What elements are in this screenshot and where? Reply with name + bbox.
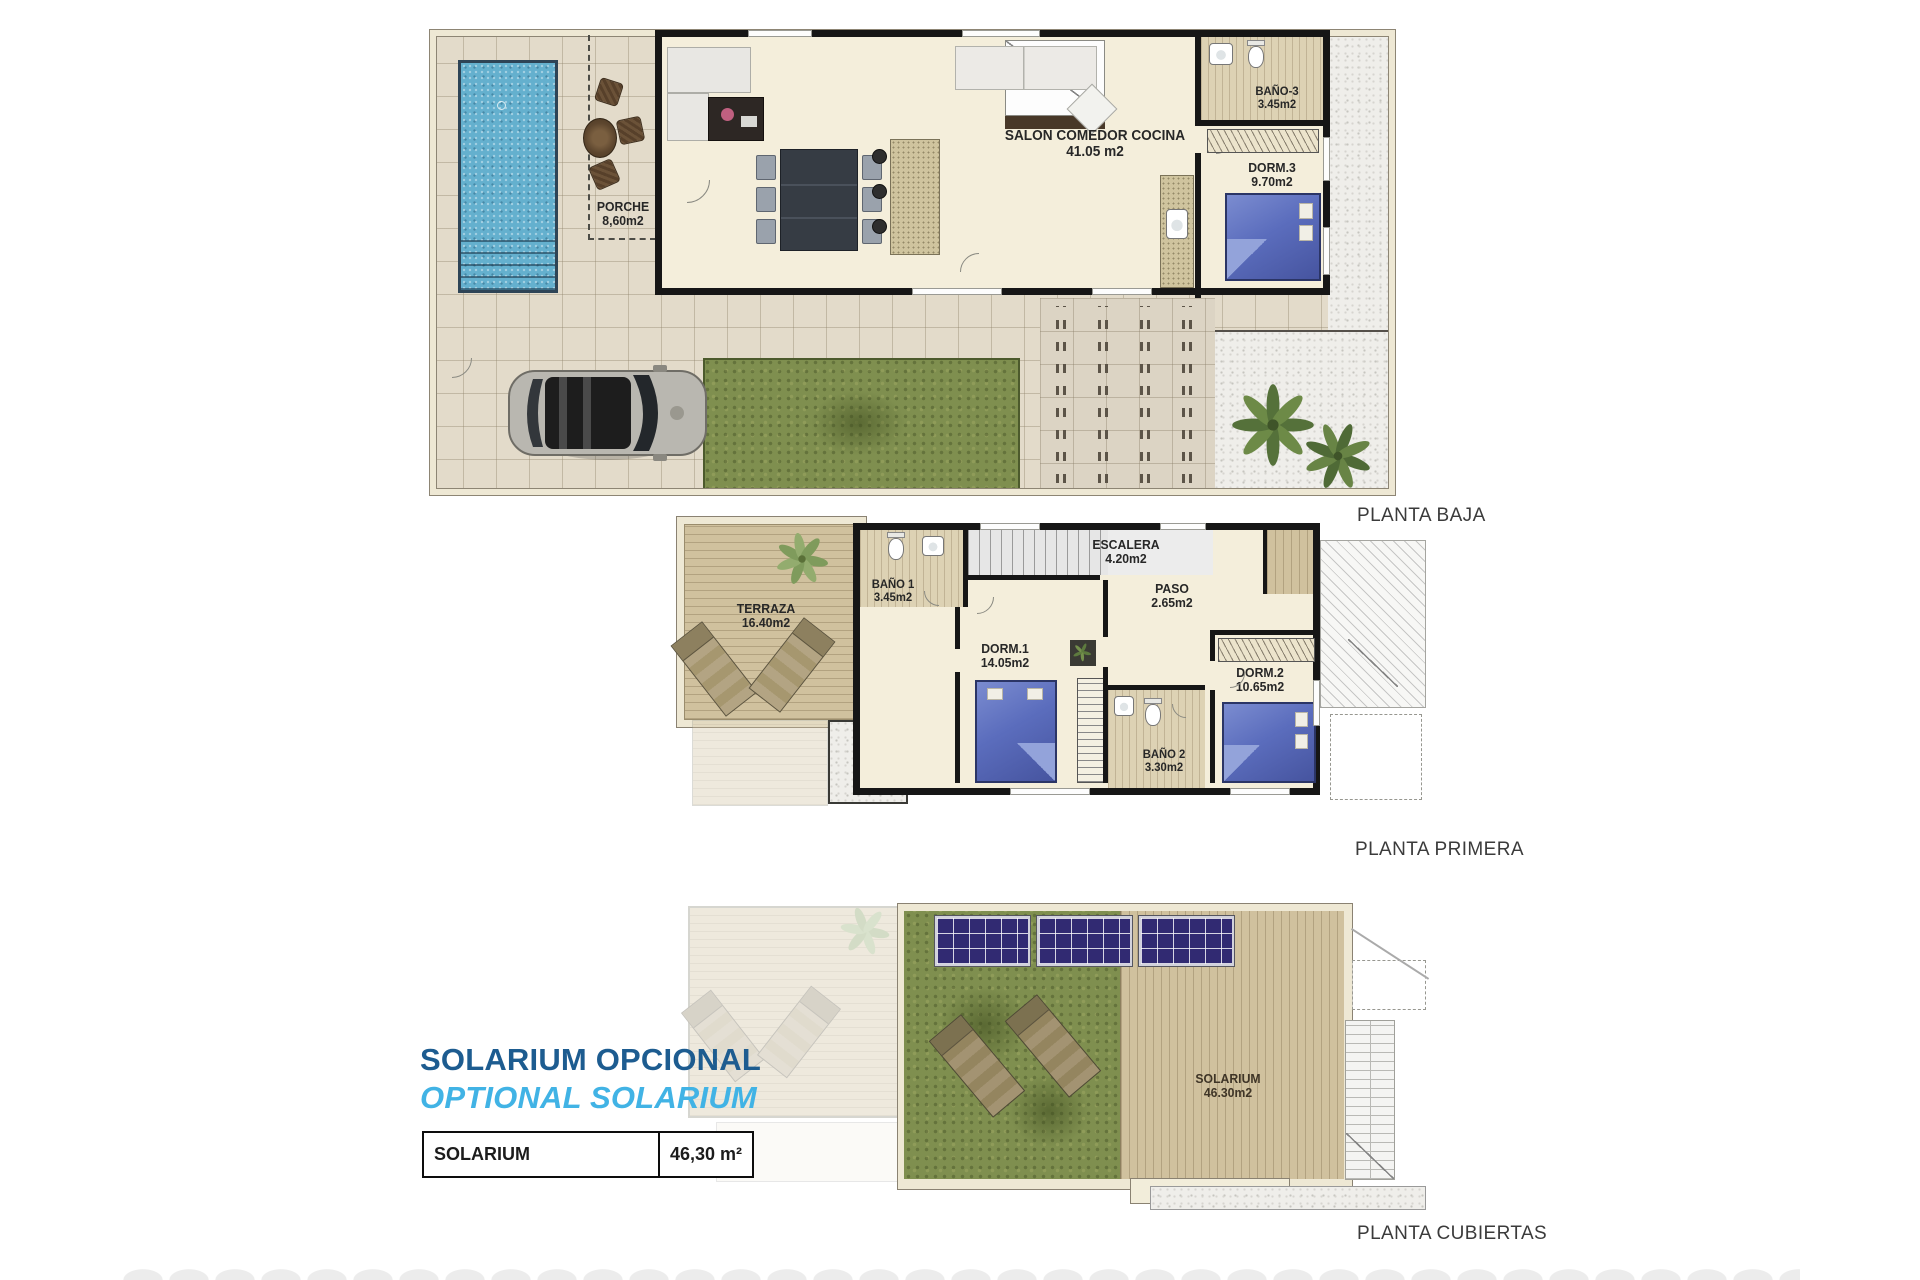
palm-tree [1302,420,1374,492]
house-outline: BAÑO 13.45m2 ESCALERA4.20m2 PASO2.65m2 D… [853,523,1320,795]
room-label-salon: SALON COMEDOR COCINA41.05 m2 [982,129,1208,161]
solarium-table-value: 46,30 m² [660,1133,752,1176]
door-swing [960,253,998,291]
room-label-solarium: SOLARIUM46.30m2 [1181,1072,1275,1101]
interior-wall [1195,120,1323,126]
potted-tree [771,528,833,590]
bed [975,680,1057,783]
solarium-table-label: SOLARIUM [424,1133,660,1176]
car [505,363,710,463]
optional-solarium-heading-en: OPTIONAL SOLARIUM [420,1080,757,1116]
roof-hip-line [1348,639,1398,687]
sink [922,536,944,556]
solar-panel [1139,916,1234,966]
room-label-escalera: ESCALERA4.20m2 [1079,538,1173,567]
wardrobe [1207,129,1319,153]
room-label-bano1: BAÑO 13.45m2 [859,578,927,604]
interior-wall [1195,153,1201,298]
bar-stool [872,184,887,199]
bar-stool [872,219,887,234]
lower-deck-ghost [692,720,828,806]
dining-chair [756,187,776,212]
roof-overhang-dashed [1352,960,1426,1010]
roof-hip-line [1346,1133,1394,1179]
interior-wall [1210,630,1320,635]
house-outline: BAÑO-33.45m2 DORM.39.70m2 SALON [655,30,1330,295]
coffee-table [708,97,764,141]
optional-solarium-heading-es: SOLARIUM OPCIONAL [420,1042,761,1078]
window [1160,523,1206,530]
decorative-border-strip [120,1261,1800,1280]
interior-wall [955,672,960,783]
book-decor [741,116,757,127]
window [1092,288,1152,295]
flower-decor [721,108,734,121]
room-label-porche: PORCHE8,60m2 [590,200,656,229]
room-label-dorm3: DORM.39.70m2 [1225,161,1319,190]
roof-hatch [1345,1020,1395,1180]
solar-panel [1037,916,1132,966]
plan-planta-cubiertas: SOLARIUM46.30m2 [688,900,1428,1212]
plan-planta-primera: TERRAZA16.40m2 BAÑO 13.45m2 ESCALERA4.20… [676,516,1426,838]
kitchen-sink [1166,209,1188,239]
interior-wall [1263,530,1267,594]
patio-table [583,118,617,158]
dining-chair [756,219,776,244]
roof-overhang-dashed [1330,714,1422,800]
floor-title-planta-primera: PLANTA PRIMERA [1355,839,1524,861]
window [748,30,812,37]
window [1010,788,1090,795]
room-label-dorm1: DORM.114.05m2 [958,642,1052,671]
gravel-strip [1150,1186,1426,1210]
plan-planta-baja: PORCHE8,60m2 [430,30,1395,495]
room-label-paso: PASO2.65m2 [1134,582,1209,611]
dining-table [780,149,858,251]
bed [1222,702,1316,783]
roof-hatch [1320,540,1426,708]
window [1313,680,1320,726]
toilet [1145,704,1161,726]
pool-jet [497,101,506,110]
room-label-bano3: BAÑO-33.45m2 [1235,85,1320,111]
patio-chair [616,116,646,146]
sofa [667,93,709,141]
door-swing [664,157,710,203]
window [962,30,1040,37]
bar-stool [872,149,887,164]
door-swing [1172,690,1200,718]
window [1230,788,1290,795]
balcony-deck [1267,530,1313,594]
window [1323,137,1330,181]
solarium-table: SOLARIUM 46,30 m² [422,1131,754,1178]
window [980,523,1040,530]
interior-wall [1210,690,1215,783]
kitchen-island [890,139,940,255]
toilet [888,538,904,560]
pool-steps [461,238,555,290]
toilet [1248,46,1264,68]
window [1323,227,1330,275]
bed [1225,193,1321,281]
room-label-bano2: BAÑO 23.30m2 [1119,748,1209,774]
room-label-terraza: TERRAZA16.40m2 [728,602,803,631]
dining-chair [756,155,776,180]
floor-title-planta-cubiertas: PLANTA CUBIERTAS [1357,1223,1547,1245]
sink [1209,43,1233,65]
solar-panel [935,916,1030,966]
sink [1114,696,1134,716]
interior-wall [968,575,1100,580]
interior-wall [1103,580,1108,637]
plant-pot [1070,640,1096,666]
floorplan-sheet: PORCHE8,60m2 [0,0,1920,1280]
sofa [955,46,1097,90]
sofa [667,47,751,93]
wardrobe [1218,638,1315,662]
terrace-door [912,288,1002,295]
room-label-dorm2: DORM.210.65m2 [1213,666,1307,695]
interior-wall [1210,635,1215,661]
swimming-pool [458,60,558,293]
